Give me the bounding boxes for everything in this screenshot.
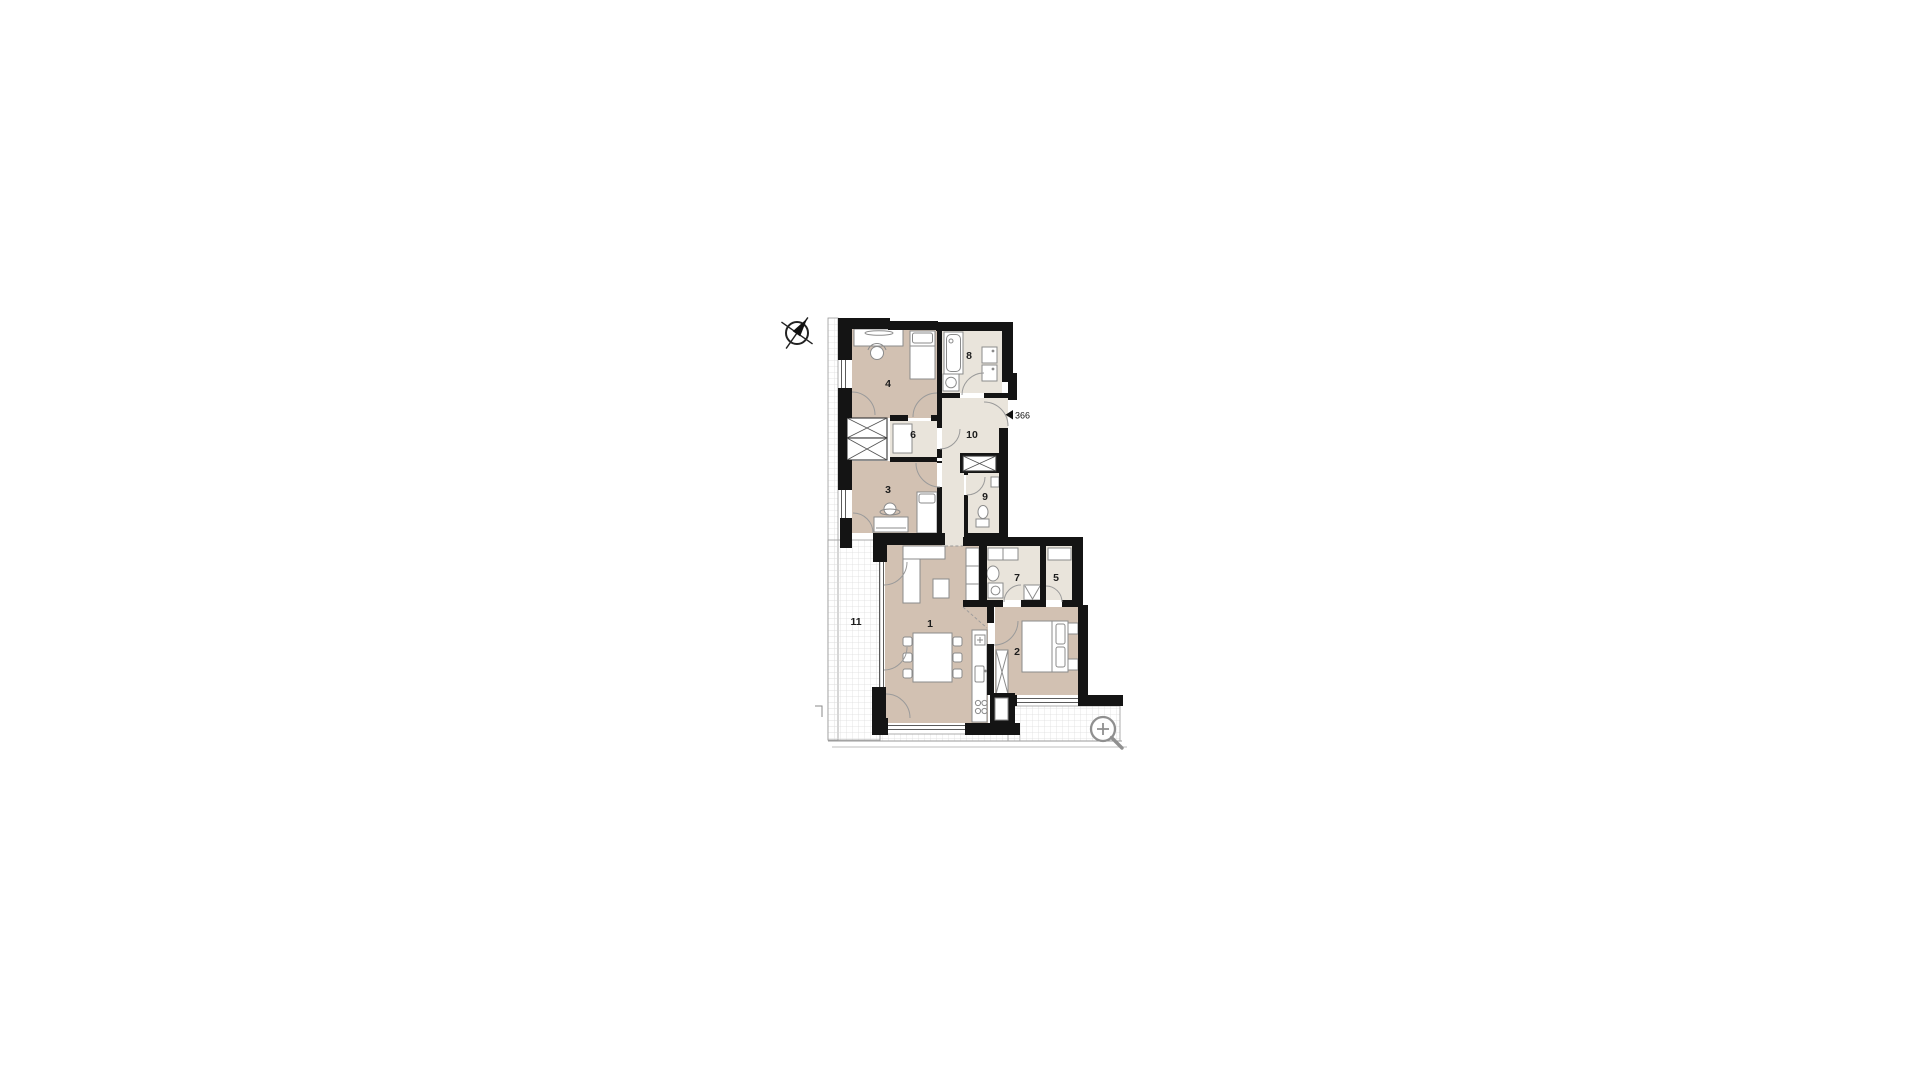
- room-label-9: 9: [982, 491, 988, 503]
- floor-plan-canvas: 4 8 6 10 3 9 7 5 1 2 11 366: [0, 0, 1920, 1080]
- door-marker-number: 366: [1015, 411, 1030, 421]
- kitchen-sink: [975, 666, 984, 682]
- kitchen-tall-units: [966, 548, 979, 606]
- pillow: [913, 333, 933, 343]
- room-label-7: 7: [1014, 572, 1020, 584]
- pillow: [919, 494, 935, 503]
- sofa-back: [903, 546, 945, 559]
- room-label-2: 2: [1014, 646, 1020, 658]
- toilet: [978, 506, 988, 519]
- washbasin: [987, 566, 999, 581]
- terrace-bottom-strip: [880, 734, 1020, 741]
- wall-niche: [995, 698, 1008, 720]
- closet-shelf: [1048, 548, 1071, 560]
- nightstand: [1068, 623, 1078, 634]
- dining-chair: [903, 669, 912, 678]
- dining-chair: [953, 669, 962, 678]
- dining-chair: [953, 653, 962, 662]
- nightstand: [1068, 659, 1078, 670]
- room-label-5: 5: [1053, 572, 1059, 584]
- pillow: [1056, 624, 1065, 644]
- room-label-11: 11: [850, 616, 861, 628]
- room-label-4: 4: [885, 378, 891, 390]
- room-label-10: 10: [966, 429, 978, 441]
- entry-door-marker: 366: [1006, 410, 1031, 421]
- shower-tray: [1024, 585, 1041, 600]
- room-label-8: 8: [966, 350, 972, 362]
- compass-rose-icon: [771, 307, 824, 360]
- room-label-1: 1: [927, 618, 933, 630]
- washbasin: [982, 347, 997, 363]
- coffee-table: [933, 579, 949, 598]
- dining-table: [913, 633, 952, 682]
- floor-plan-drawing: 4 8 6 10 3 9 7 5 1 2 11 366: [0, 0, 1920, 1080]
- room-label-3: 3: [885, 484, 891, 496]
- toilet-tank: [976, 519, 989, 527]
- pillow: [1056, 647, 1065, 667]
- desk: [874, 517, 908, 532]
- chair: [871, 347, 884, 360]
- room-label-6: 6: [910, 429, 916, 441]
- small-sink: [991, 477, 999, 487]
- elevation-tick: [815, 706, 822, 717]
- dining-chair: [953, 637, 962, 646]
- washbasin: [982, 365, 997, 381]
- sofa-chaise: [903, 559, 920, 603]
- washing-machine: [988, 583, 1003, 598]
- dining-chair: [903, 637, 912, 646]
- room-10-passage: [945, 537, 963, 546]
